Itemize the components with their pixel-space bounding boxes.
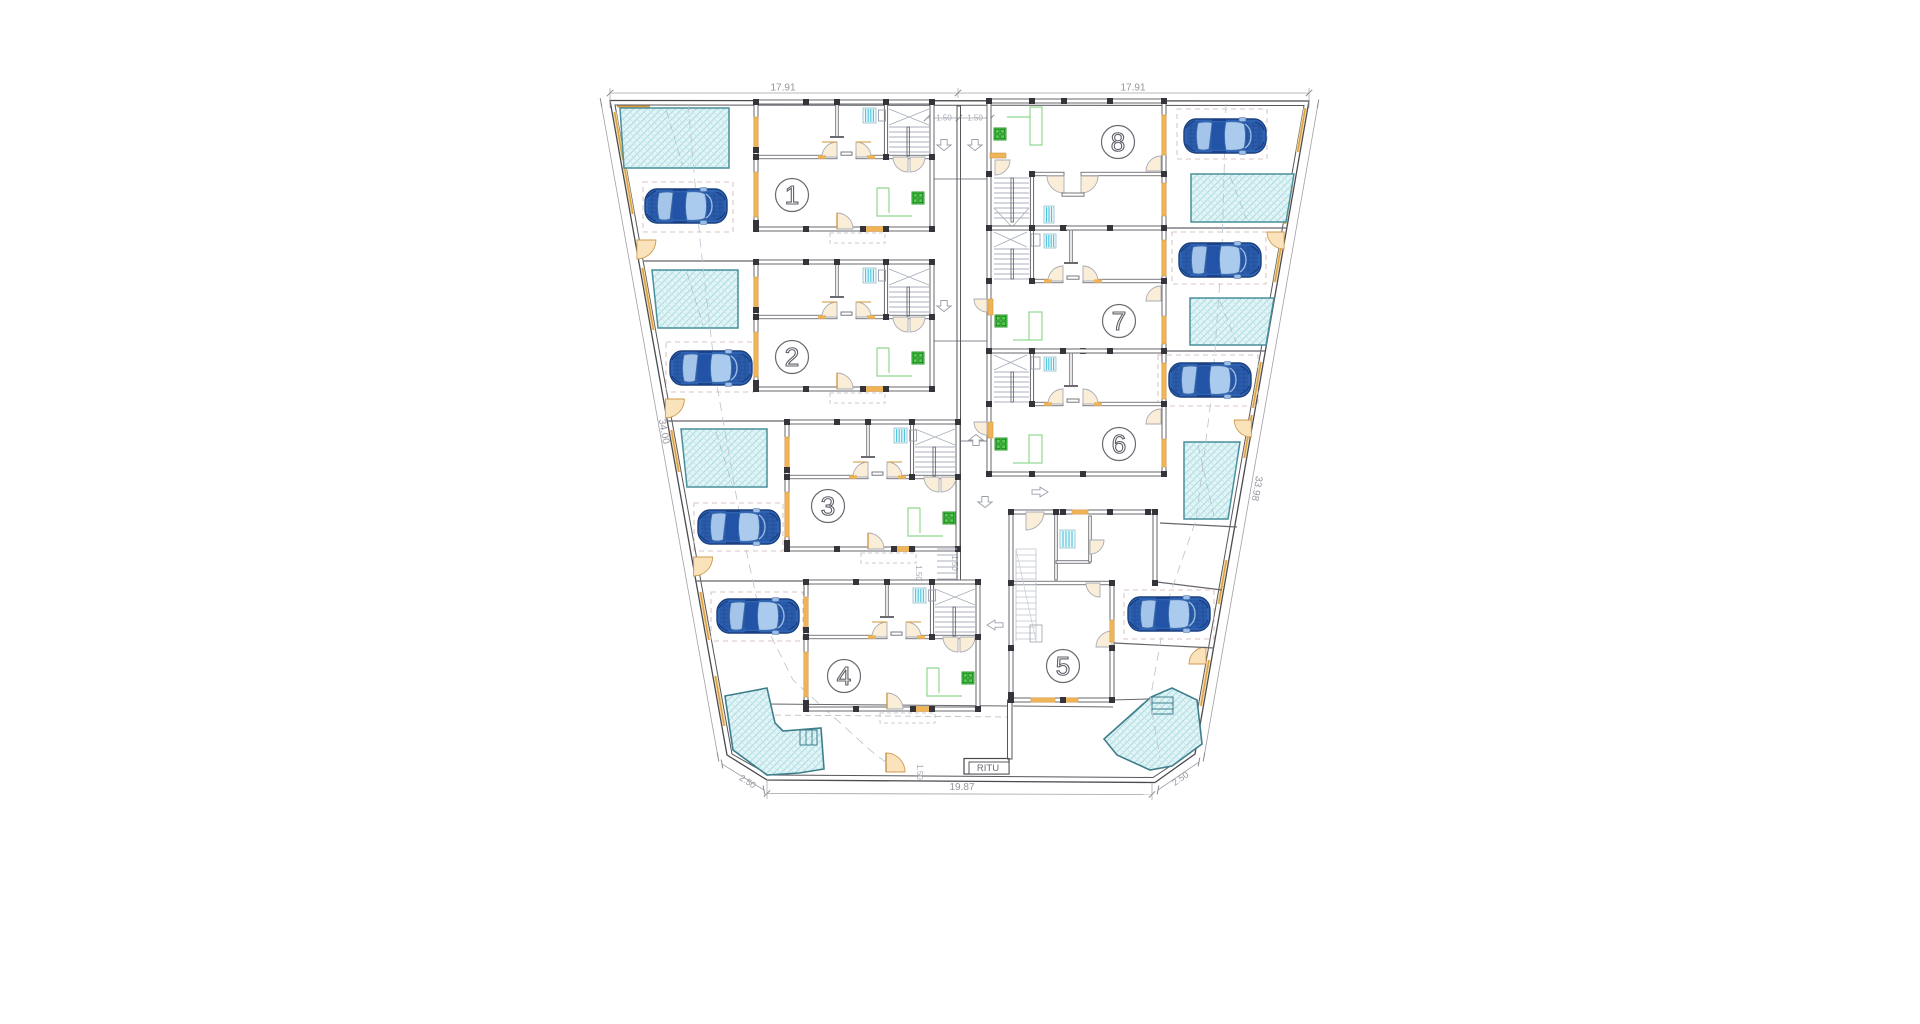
svg-text:19.87: 19.87 — [949, 782, 974, 793]
svg-text:6: 6 — [1112, 429, 1126, 459]
svg-text:8: 8 — [1111, 127, 1125, 157]
svg-text:17.91: 17.91 — [1120, 83, 1145, 94]
svg-text:1.50: 1.50 — [915, 764, 924, 780]
svg-text:1.50: 1.50 — [936, 114, 952, 123]
svg-text:5: 5 — [1056, 651, 1070, 681]
svg-text:1.50: 1.50 — [914, 565, 923, 581]
svg-text:3: 3 — [821, 491, 835, 521]
svg-text:17.91: 17.91 — [770, 83, 795, 94]
svg-text:1.50: 1.50 — [950, 555, 959, 571]
svg-text:2: 2 — [785, 342, 799, 372]
svg-text:RITU: RITU — [977, 763, 999, 774]
svg-text:1.50: 1.50 — [967, 114, 983, 123]
svg-text:1: 1 — [785, 180, 799, 210]
svg-text:4: 4 — [837, 661, 851, 691]
svg-text:7: 7 — [1112, 306, 1126, 336]
